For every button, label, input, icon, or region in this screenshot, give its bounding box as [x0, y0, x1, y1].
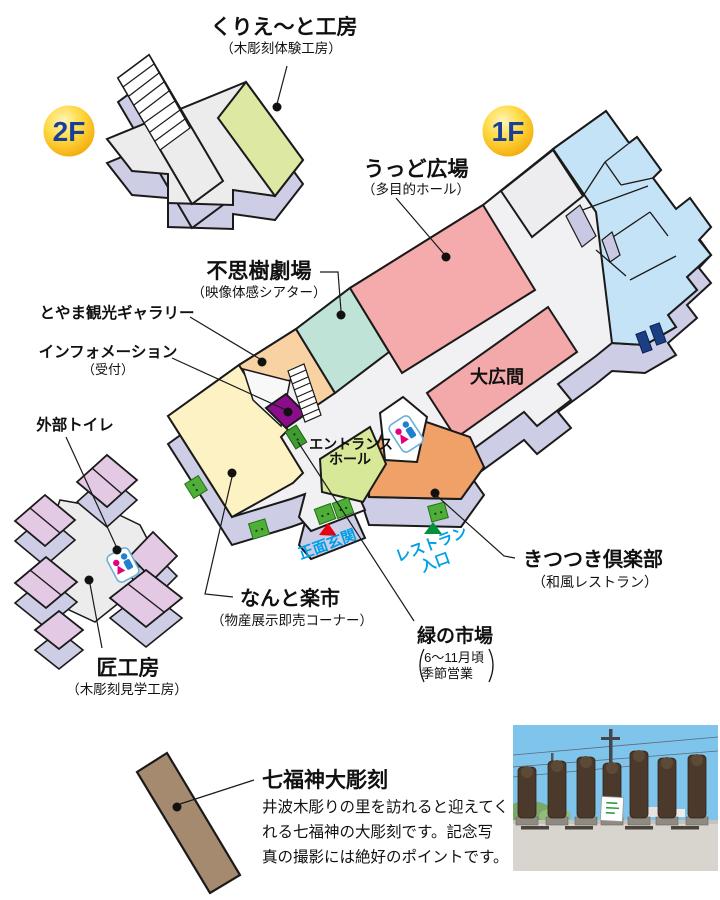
shichifukujin-desc-3: 真の撮影には絶好のポイントです。	[262, 848, 508, 866]
label-create-studio-sub: （木彫刻体験工房）	[220, 41, 342, 56]
label-information-sub: （受付）	[82, 362, 134, 377]
shichifukujin-photo	[505, 725, 718, 871]
label-toyama-gallery: とやま観光ギャラリー	[39, 303, 194, 322]
label-information: インフォメーション	[39, 344, 178, 361]
label-fushigi-theater: 不思樹劇場	[207, 259, 312, 283]
badge-1f-text: 1F	[492, 116, 525, 147]
label-nanto: なんと楽市	[240, 586, 340, 610]
label-outdoor-toilet: 外部トイレ	[36, 415, 114, 434]
label-midori-season-2: 季節営業	[421, 666, 473, 681]
label-kitsutsuki-sub: （和風レストラン）	[532, 574, 658, 590]
label-create-studio: くりえ〜と工房	[211, 15, 358, 39]
label-shichifukujin: 七福神大彫刻	[262, 768, 388, 792]
takumi-cluster	[15, 455, 182, 669]
label-takumi: 匠工房	[97, 656, 160, 680]
label-kitsutsuki: きつつき倶楽部	[523, 547, 663, 571]
badge-2f: 2F	[42, 104, 96, 158]
label-wood-plaza-sub: （多目的ホール）	[362, 181, 470, 197]
label-midori: 緑の市場	[417, 624, 493, 647]
shichifukujin-monument	[137, 753, 240, 893]
label-takumi-sub: （木彫刻見学工房）	[66, 682, 188, 697]
badge-1f: 1F	[481, 104, 535, 158]
building-2f	[107, 55, 303, 229]
label-wood-plaza: うっど広場	[364, 157, 469, 181]
paren-right	[489, 649, 493, 682]
label-entrance-hall-2: ホール	[329, 451, 371, 467]
map-canvas: 2F 1F	[0, 0, 720, 900]
label-midori-season-1: 6〜11月頃	[424, 650, 484, 665]
facility-floor-map: 2F 1F	[0, 0, 720, 900]
label-entrance-hall-1: エントランス	[309, 436, 393, 452]
photo-crossarm	[601, 737, 620, 740]
label-fushigi-theater-sub: （映像体感シアター）	[192, 284, 327, 300]
badge-2f-text: 2F	[53, 116, 86, 147]
shichifukujin-desc-2: れる七福神の大彫刻です。記念写	[262, 822, 493, 841]
photo-sign	[600, 796, 623, 821]
label-ohiroma: 大広間	[470, 366, 524, 387]
label-nanto-sub: （物産展示即売コーナー）	[211, 613, 373, 628]
shichifukujin-desc-1: 井波木彫りの里を訪れると迎えてく	[262, 798, 509, 816]
